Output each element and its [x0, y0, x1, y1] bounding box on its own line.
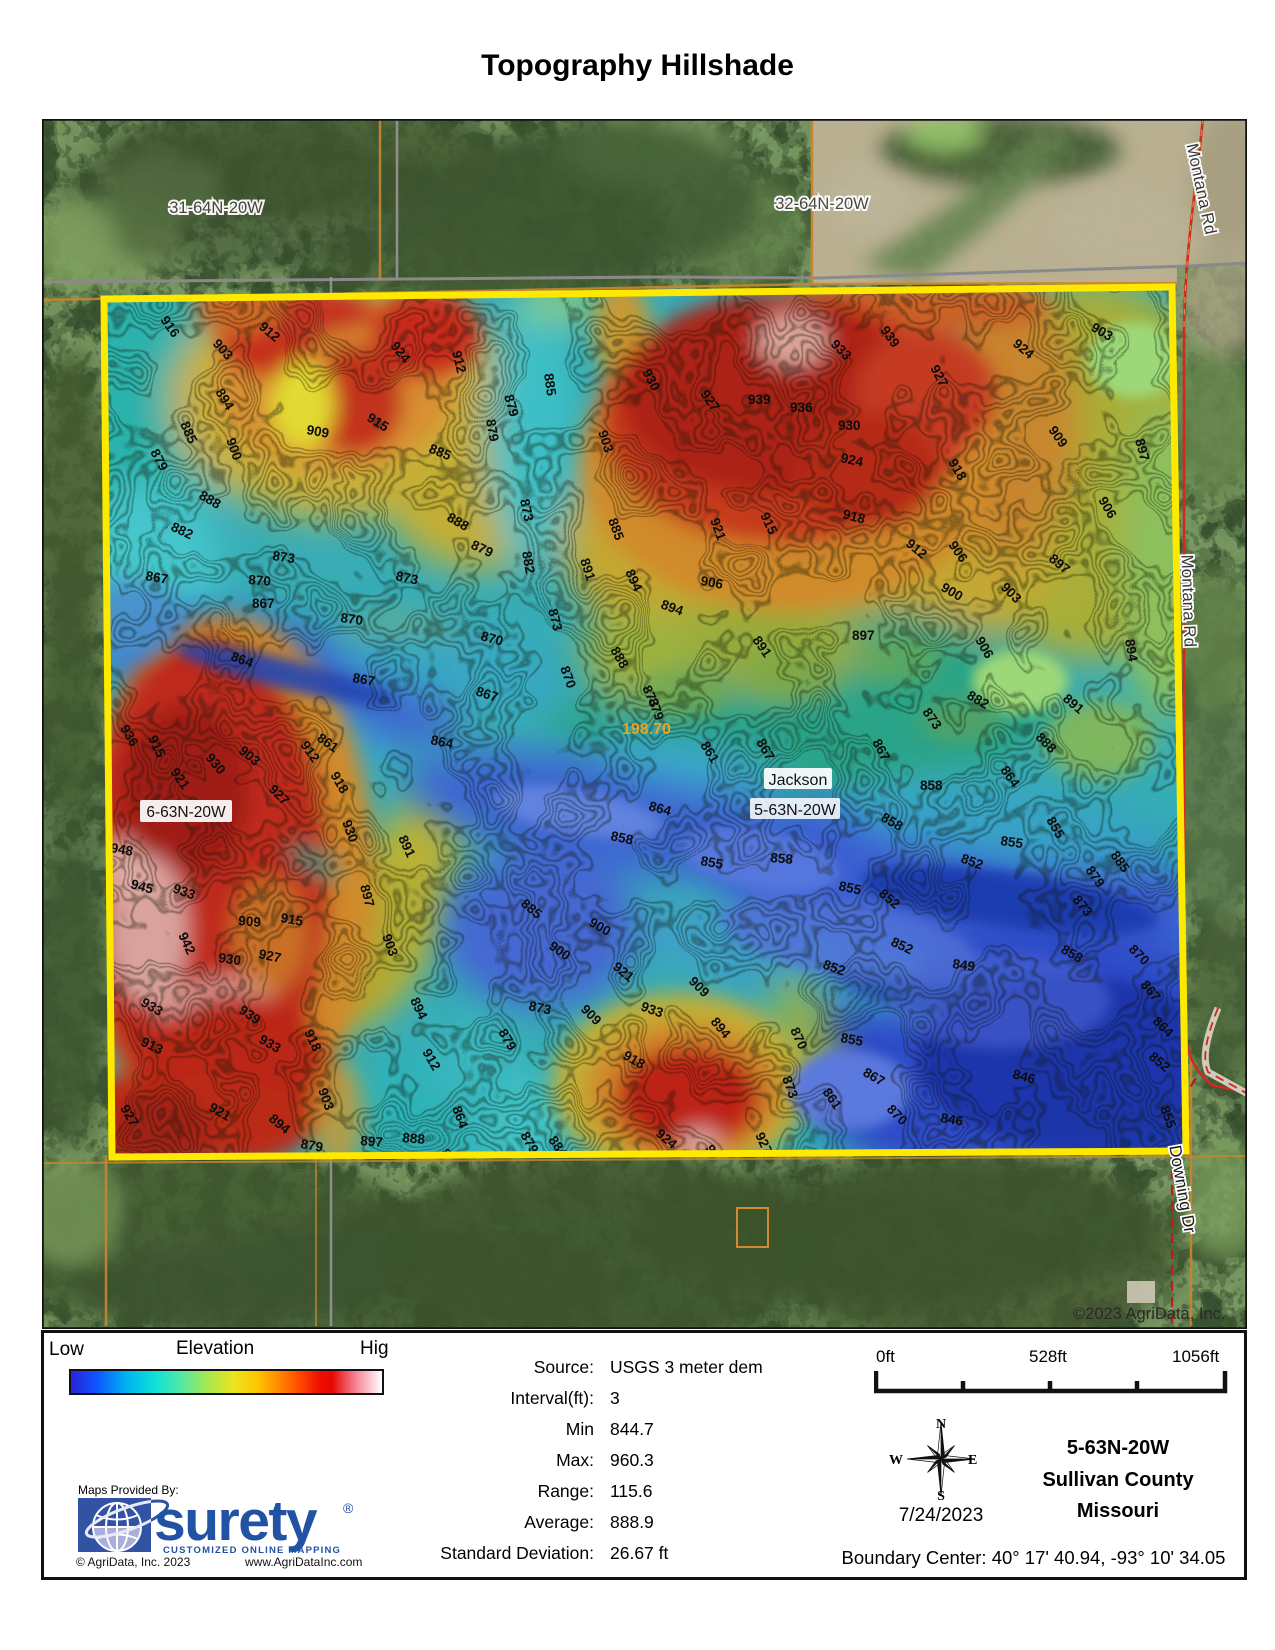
- svg-text:870: 870: [248, 572, 272, 589]
- svg-text:Montana Rd: Montana Rd: [1177, 554, 1199, 647]
- svg-text:870: 870: [340, 610, 364, 628]
- svg-text:Jackson: Jackson: [769, 772, 828, 789]
- svg-text:897: 897: [852, 628, 875, 643]
- svg-text:930: 930: [218, 950, 242, 968]
- svg-text:930: 930: [838, 418, 861, 433]
- svg-text:897: 897: [360, 1133, 384, 1150]
- svg-text:5-63N-20W: 5-63N-20W: [754, 802, 837, 819]
- svg-text:31-64N-20W: 31-64N-20W: [169, 199, 263, 217]
- svg-text:939: 939: [748, 392, 771, 407]
- svg-text:888: 888: [402, 1130, 426, 1147]
- svg-text:®: ®: [343, 1500, 354, 1516]
- svg-text:858: 858: [770, 850, 794, 867]
- svg-text:198.70: 198.70: [622, 721, 671, 738]
- svg-text:858: 858: [920, 778, 943, 793]
- svg-text:32-64N-20W: 32-64N-20W: [775, 195, 869, 213]
- svg-text:867: 867: [252, 596, 275, 611]
- svg-text:849: 849: [952, 956, 976, 974]
- svg-text:6-63N-20W: 6-63N-20W: [146, 804, 226, 821]
- svg-text:936: 936: [790, 400, 813, 415]
- svg-text:©2023 AgriData, Inc.: ©2023 AgriData, Inc.: [1073, 1305, 1226, 1323]
- svg-text:885: 885: [541, 372, 559, 397]
- svg-text:909: 909: [238, 913, 262, 930]
- svg-text:873: 873: [272, 548, 297, 566]
- svg-text:855: 855: [1000, 833, 1025, 851]
